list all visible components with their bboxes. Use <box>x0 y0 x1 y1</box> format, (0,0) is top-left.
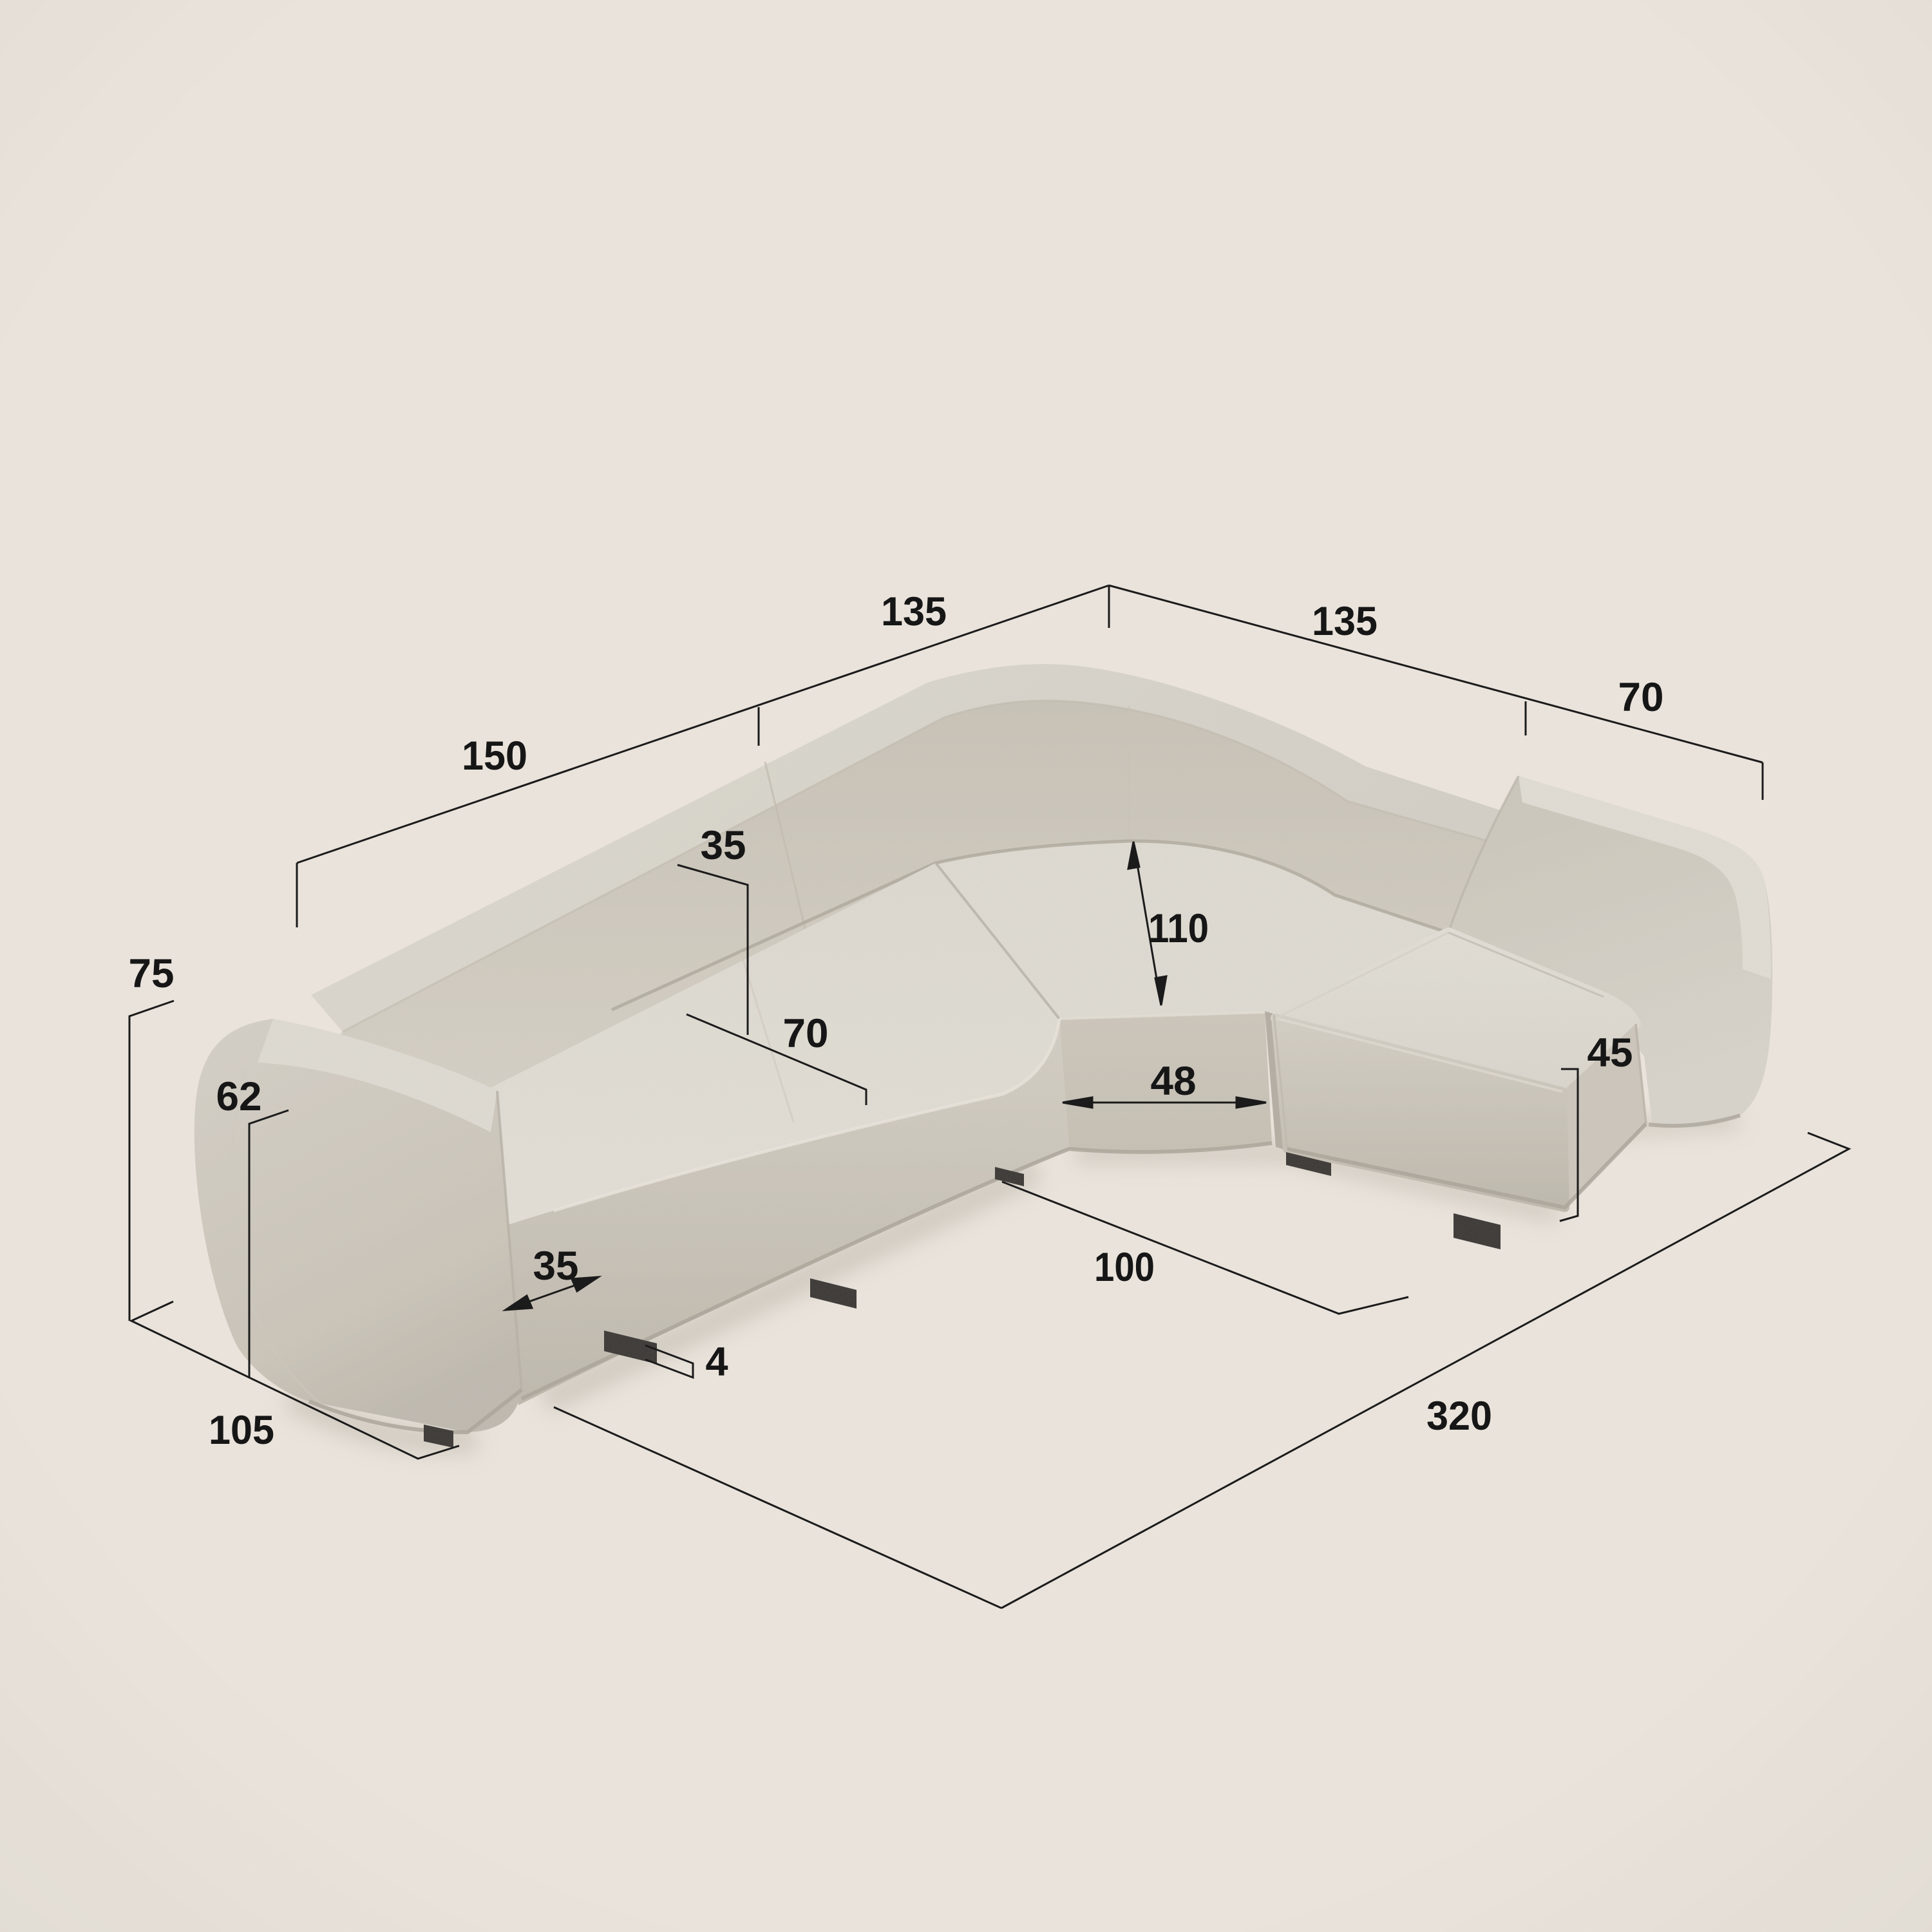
svg-text:45: 45 <box>1587 1030 1633 1075</box>
svg-text:48: 48 <box>1151 1059 1197 1104</box>
svg-text:35: 35 <box>533 1244 579 1289</box>
svg-text:70: 70 <box>783 1011 829 1056</box>
svg-text:105: 105 <box>209 1408 274 1453</box>
svg-text:75: 75 <box>129 951 175 996</box>
svg-text:70: 70 <box>1618 675 1664 720</box>
svg-text:100: 100 <box>1094 1245 1155 1290</box>
svg-text:4: 4 <box>705 1340 728 1385</box>
svg-text:320: 320 <box>1426 1394 1492 1439</box>
svg-text:135: 135 <box>1312 599 1378 644</box>
svg-text:110: 110 <box>1148 906 1209 951</box>
svg-text:150: 150 <box>462 734 527 779</box>
svg-text:135: 135 <box>881 589 947 634</box>
svg-text:35: 35 <box>701 823 746 868</box>
svg-text:62: 62 <box>216 1074 262 1119</box>
